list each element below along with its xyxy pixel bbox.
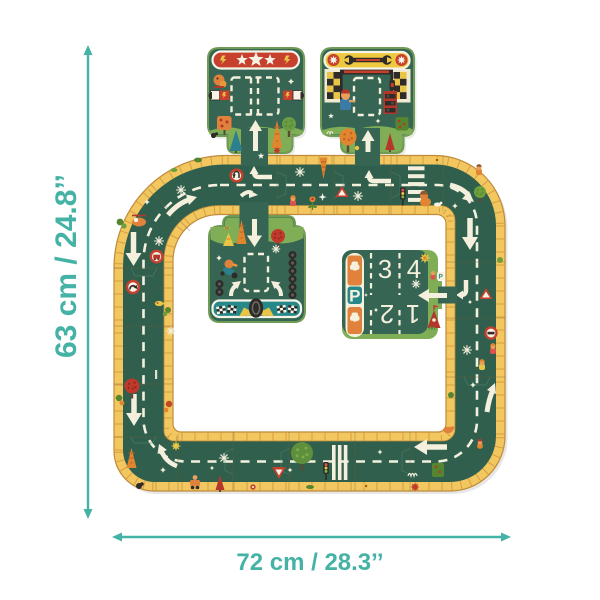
svg-text:1: 1 [406, 299, 420, 329]
svg-text:P: P [439, 274, 444, 281]
svg-text:2: 2 [380, 299, 394, 329]
svg-text:72 cm / 28.3’’: 72 cm / 28.3’’ [236, 549, 383, 576]
svg-text:P: P [349, 287, 360, 306]
svg-text:63 cm / 24.8’’: 63 cm / 24.8’’ [50, 174, 83, 358]
svg-text:4: 4 [407, 254, 421, 284]
svg-text:3: 3 [378, 254, 392, 284]
